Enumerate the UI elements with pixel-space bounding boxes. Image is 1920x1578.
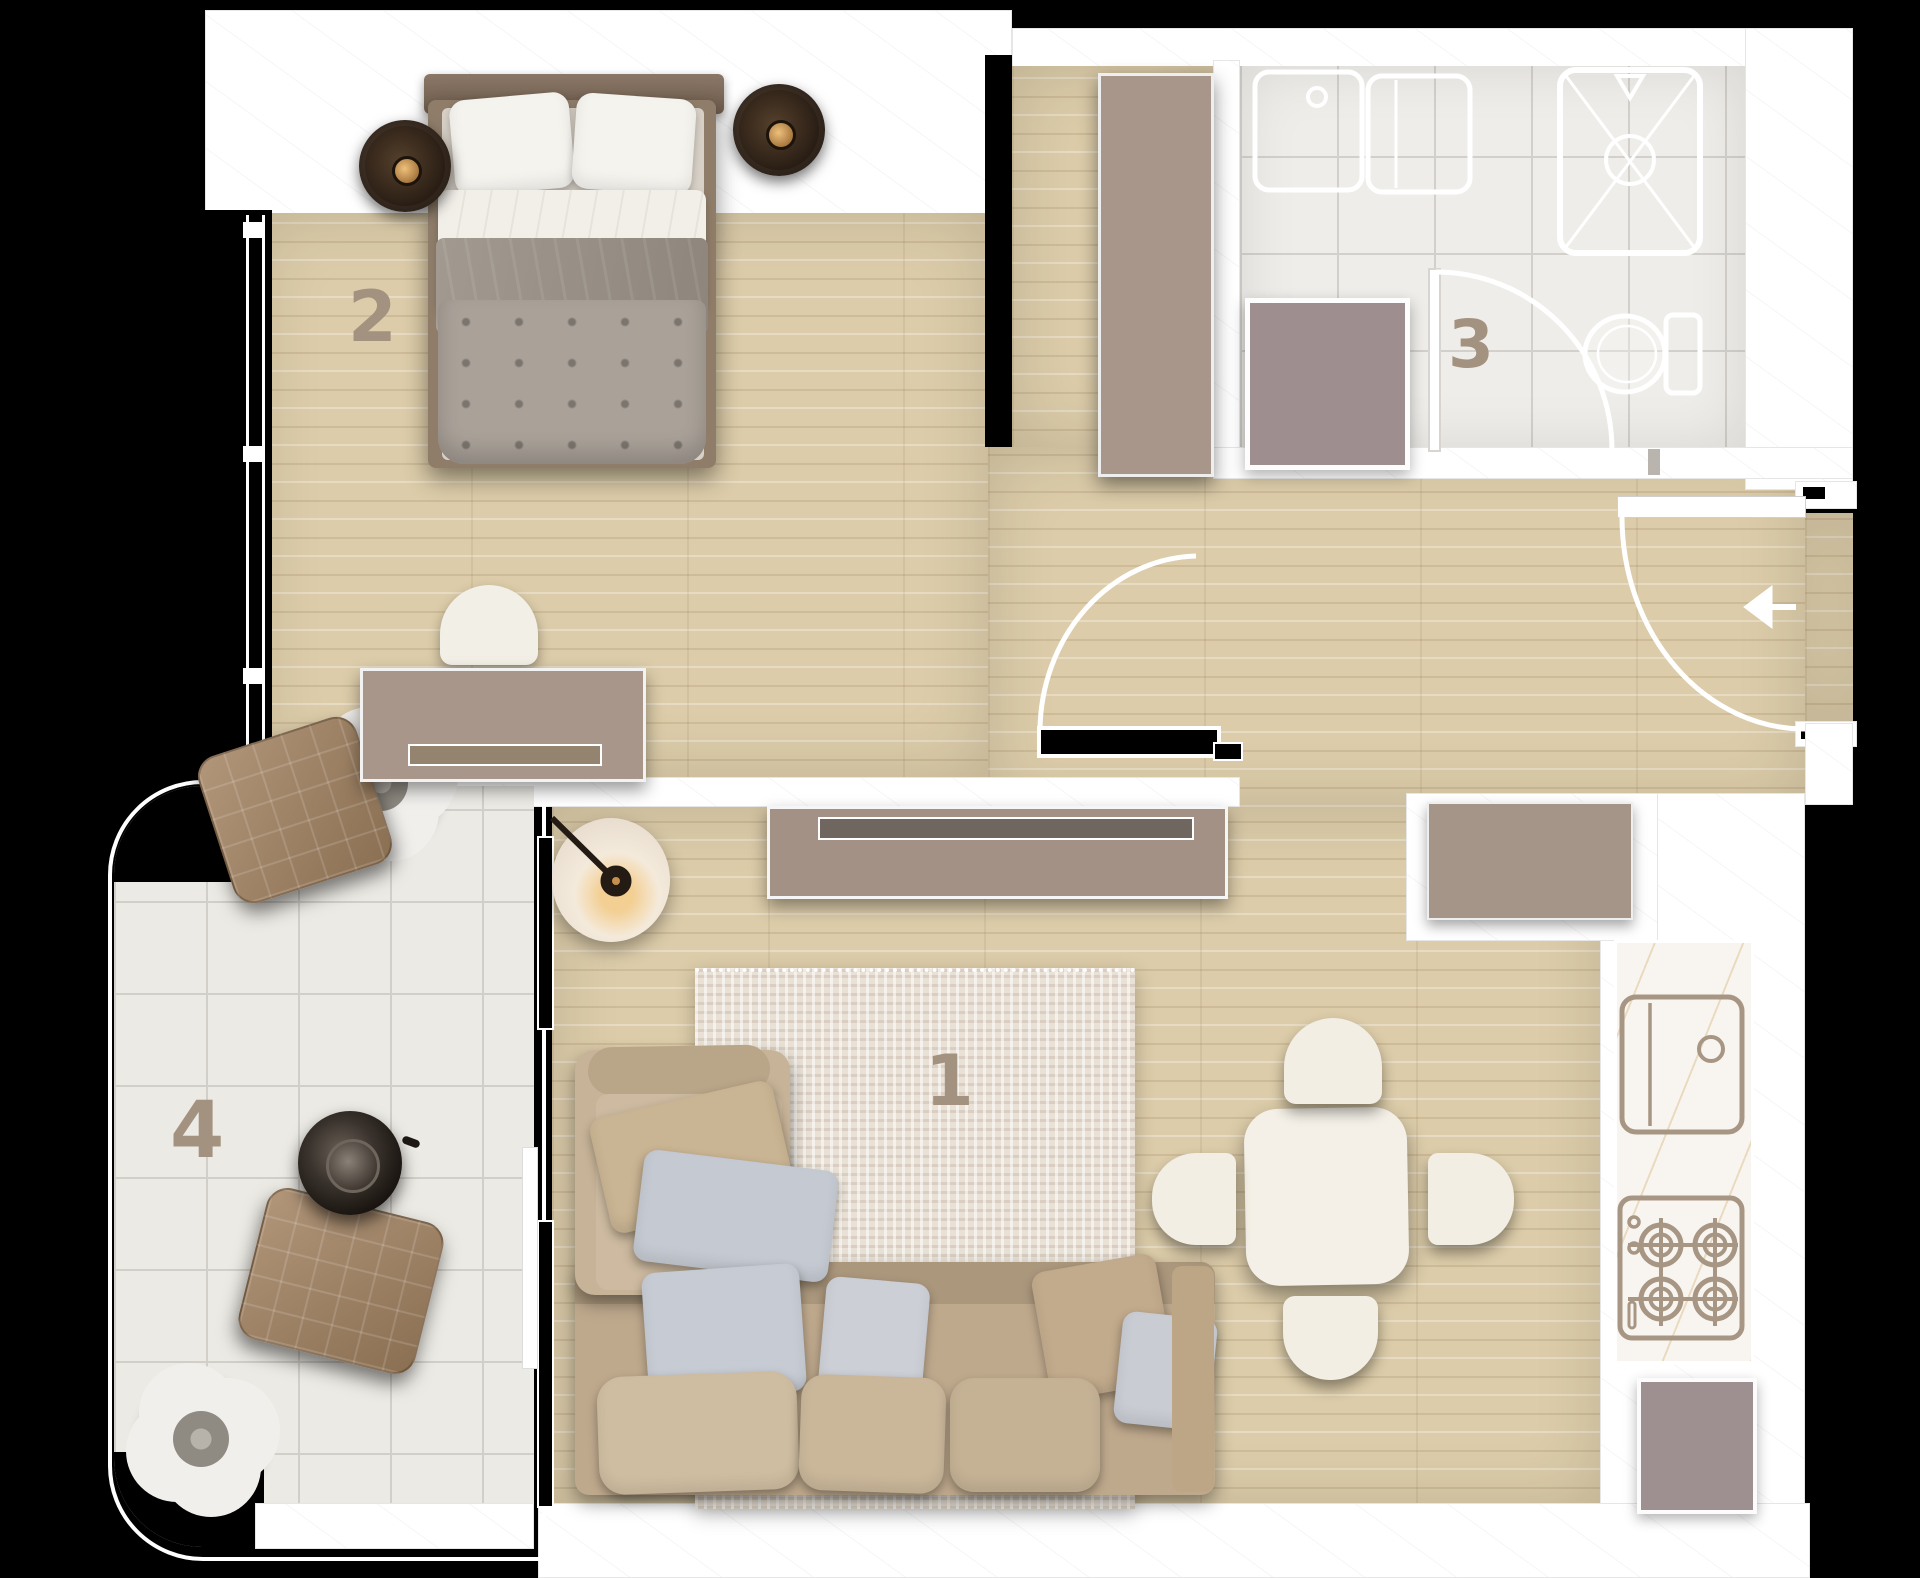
room-number-bathroom: 3 [1448, 312, 1494, 378]
sofa-seat-cushion [596, 1371, 800, 1496]
sofa-pillow [632, 1148, 840, 1283]
wall-top-right [1012, 28, 1853, 70]
bed-tufted-cover [438, 300, 706, 464]
floor-plan: 1 2 3 4 [0, 0, 1920, 1578]
balcony-sliding-door-panel [537, 836, 554, 1030]
room-number-living: 1 [925, 1046, 974, 1116]
balcony-side-table [298, 1111, 402, 1215]
window-mullion-joint [243, 222, 265, 238]
dining-chair [1428, 1153, 1514, 1245]
entry-jamb-top-tick [1803, 487, 1825, 499]
wall-right-lower [1805, 723, 1853, 805]
wall-bottom [538, 1503, 1810, 1578]
bed-pillow [448, 91, 576, 197]
sofa-seat-cushion [798, 1374, 947, 1495]
washer-closet [1245, 298, 1410, 470]
kitchen-worktop [1614, 940, 1754, 1364]
entry-pocket-floor [1805, 513, 1853, 723]
sofa-armrest [1172, 1266, 1214, 1492]
room-number-bedroom: 2 [348, 282, 397, 352]
lamp-bulb [766, 120, 796, 150]
wall-bathroom-right [1745, 28, 1853, 490]
plant-core [173, 1411, 229, 1467]
dining-table [1243, 1107, 1409, 1287]
dining-chair [1152, 1153, 1236, 1245]
pendant-lamp-icon [359, 120, 451, 212]
window-mullion [262, 215, 265, 778]
window-mullion-joint [243, 446, 265, 462]
wall-strip-bedroom [985, 55, 1012, 447]
balcony-sliding-door-rail [523, 1148, 537, 1368]
window-mullion-joint [243, 668, 265, 684]
room-number-balcony: 4 [170, 1092, 224, 1170]
floor-lamp-icon [552, 818, 670, 942]
bathroom-door-leaf [1428, 268, 1441, 452]
plant-icon [140, 1378, 262, 1500]
desk-drawer [408, 744, 602, 766]
bathroom-door-jamb [1648, 449, 1660, 475]
bedroom-door-frame [1213, 742, 1243, 761]
fridge [1637, 1378, 1757, 1514]
window-mullion [246, 215, 249, 778]
kitchen-counter [1427, 802, 1633, 920]
lamp-bulb [392, 156, 422, 186]
tv [818, 817, 1194, 840]
balcony-sliding-door-panel [537, 1220, 554, 1508]
pendant-lamp-icon [733, 84, 825, 176]
sofa-seat-cushion [950, 1378, 1100, 1492]
entry-door-leaf [1618, 497, 1805, 517]
wardrobe [1098, 73, 1214, 477]
wall-bathroom-left [1213, 60, 1240, 449]
bedroom-door-leaf [1037, 726, 1221, 758]
table-core [326, 1139, 380, 1193]
bed-pillow [571, 92, 697, 196]
